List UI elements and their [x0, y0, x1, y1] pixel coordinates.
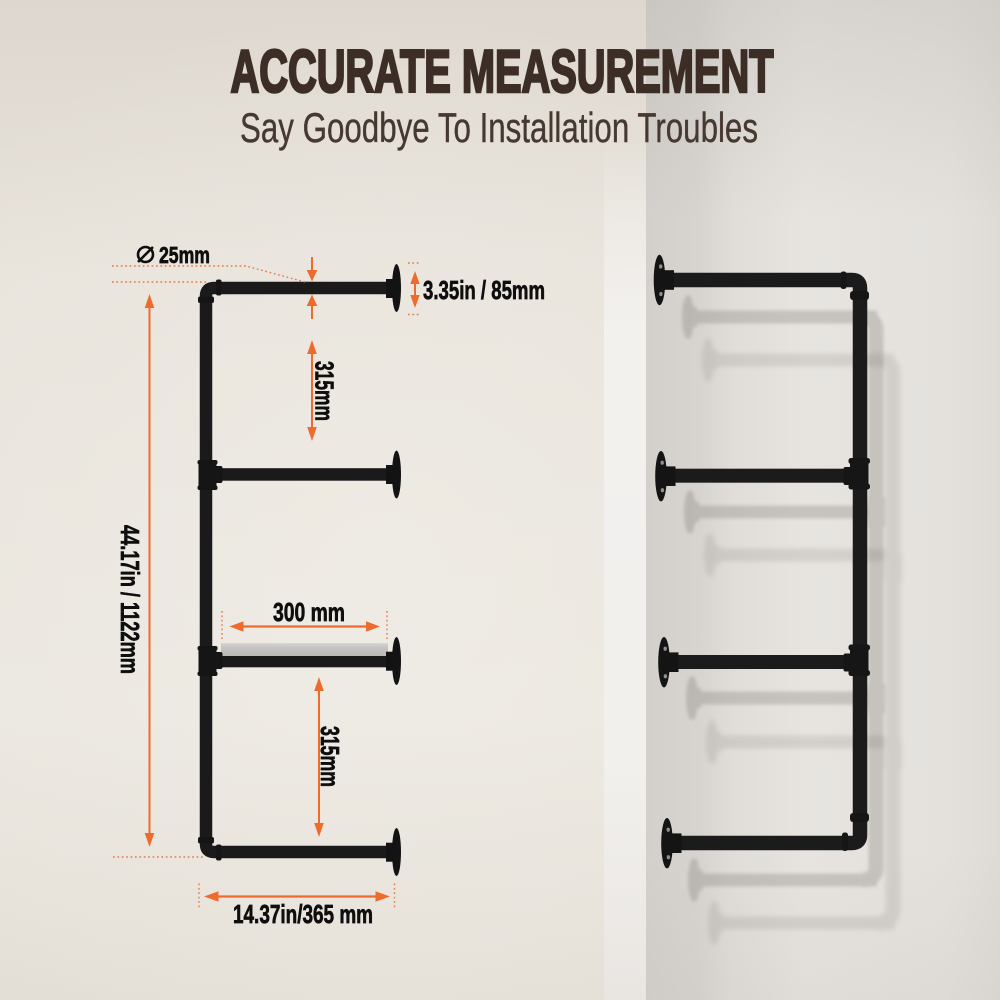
svg-text:ACCURATE MEASUREMENT: ACCURATE MEASUREMENT: [231, 38, 774, 105]
svg-text:44.17in / 1122mm: 44.17in / 1122mm: [115, 525, 145, 674]
svg-text:315mm: 315mm: [315, 726, 345, 787]
svg-text:25mm: 25mm: [159, 242, 210, 268]
svg-text:Say Goodbye To Installation Tr: Say Goodbye To Installation Troubles: [240, 104, 758, 151]
svg-text:3.35in / 85mm: 3.35in / 85mm: [423, 275, 545, 305]
svg-text:315mm: 315mm: [310, 361, 340, 421]
svg-text:300 mm: 300 mm: [273, 597, 345, 627]
svg-text:14.37in/365 mm: 14.37in/365 mm: [233, 899, 373, 929]
